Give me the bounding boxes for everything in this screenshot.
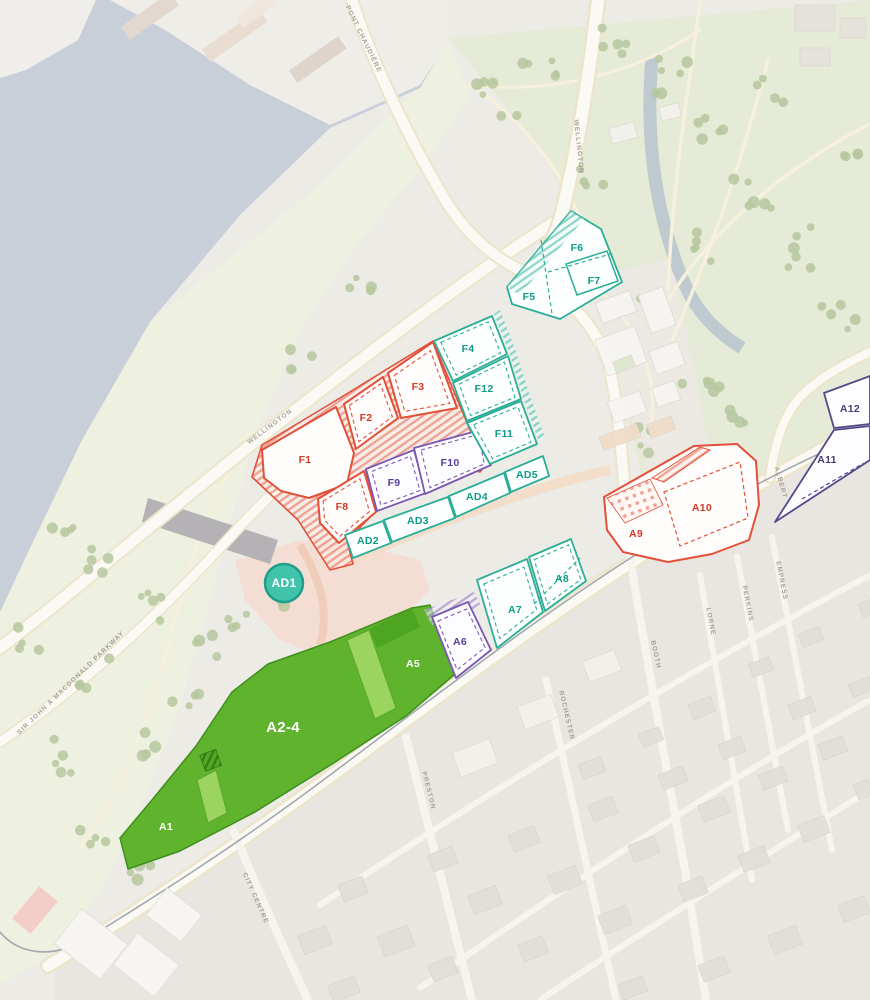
parcel-label-f10: F10 xyxy=(441,457,460,469)
parcel-label-f7: F7 xyxy=(588,275,601,287)
parcel-label-f3: F3 xyxy=(412,381,425,393)
parcel-label-ad2: AD2 xyxy=(357,535,379,547)
masterplan-map: A1 A2-4 A5 F1 F2 F3 F8 F9 F10 xyxy=(0,0,870,1000)
parcel-label-a6: A6 xyxy=(453,636,467,648)
parcel-label-f6: F6 xyxy=(571,242,584,254)
parcel-label-f5: F5 xyxy=(523,291,536,303)
parcel-label-a12: A12 xyxy=(840,403,860,415)
parcel-label-a1[interactable]: A1 xyxy=(159,821,173,833)
parcel-label-f8: F8 xyxy=(336,501,349,513)
parcel-label-ad5: AD5 xyxy=(516,469,538,481)
parcel-label-f2: F2 xyxy=(360,412,373,424)
parcel-label-a11: A11 xyxy=(817,454,837,466)
parcel-label-a10: A10 xyxy=(692,502,712,514)
parcel-label-a9: A9 xyxy=(629,528,643,540)
parcel-label-ad1: AD1 xyxy=(272,576,297,590)
parcel-label-f11: F11 xyxy=(495,428,513,440)
parcel-label-a2-4[interactable]: A2-4 xyxy=(266,719,300,736)
parcel-label-f9: F9 xyxy=(388,477,401,489)
site-plan-svg: A1 A2-4 A5 F1 F2 F3 F8 F9 F10 xyxy=(0,0,870,1000)
parcel-label-ad4: AD4 xyxy=(466,491,488,503)
parcel-label-a5[interactable]: A5 xyxy=(406,658,420,670)
ad1-badge[interactable]: AD1 xyxy=(265,564,303,602)
parcel-label-f12: F12 xyxy=(475,383,494,395)
parcel-label-ad3: AD3 xyxy=(407,515,429,527)
parcel-label-a8: A8 xyxy=(555,573,569,585)
parcel-label-f1: F1 xyxy=(299,454,312,466)
parcel-label-a7: A7 xyxy=(508,604,522,616)
parcel-label-f4: F4 xyxy=(462,343,475,355)
